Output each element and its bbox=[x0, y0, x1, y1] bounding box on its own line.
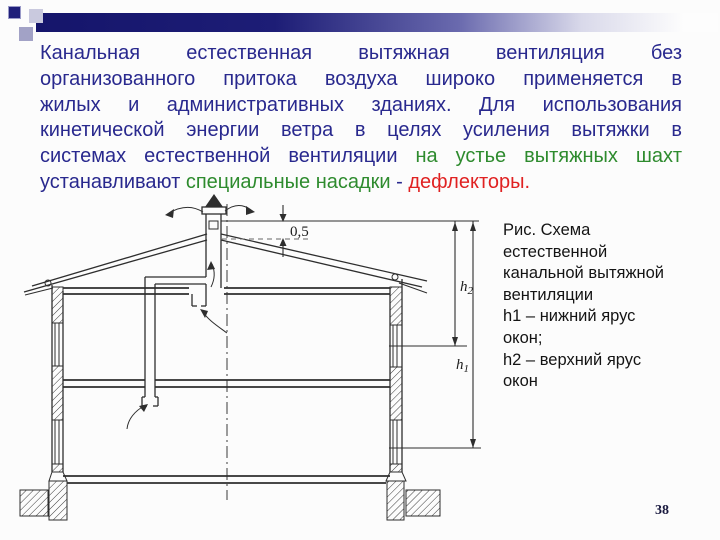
h1-label: h1 bbox=[456, 357, 469, 375]
lower-intake-arrow-icon bbox=[127, 406, 144, 429]
page-number: 38 bbox=[655, 503, 669, 519]
caption-line: окон bbox=[503, 371, 703, 393]
intro-paragraph: Канальная естественная вытяжная вентиляц… bbox=[40, 41, 682, 196]
caption-line: вентиляции bbox=[503, 285, 703, 307]
exhaust-up-arrow-icon bbox=[205, 194, 223, 207]
caption-line: канальной вытяжной bbox=[503, 263, 703, 285]
paragraph-line: устанавливают специальные насадки - дефл… bbox=[40, 170, 682, 196]
paragraph-line: системах естественной вентиляции на усть… bbox=[40, 144, 682, 170]
deflector-cap bbox=[202, 194, 226, 214]
offset-label: 0,5 bbox=[290, 224, 309, 240]
left-wall bbox=[49, 285, 67, 481]
caption-line: h1 – нижний ярус bbox=[503, 306, 703, 328]
caption-line: Рис. Схема bbox=[503, 220, 703, 242]
foundation bbox=[20, 476, 440, 520]
caption-line: окон; bbox=[503, 328, 703, 350]
decor-square-dark bbox=[8, 6, 21, 19]
decor-square-medium bbox=[19, 27, 33, 41]
dimension-offset-0-5: 0,5 bbox=[280, 205, 309, 257]
dimension-h1: h1 bbox=[389, 221, 481, 448]
paragraph-line: Канальная естественная вытяжная вентиляц… bbox=[40, 41, 682, 67]
caption-line: h2 – верхний ярус bbox=[503, 350, 703, 372]
wind-arrow-left-icon bbox=[169, 207, 203, 213]
paragraph-line: жилых и административных зданиях. Для ис… bbox=[40, 93, 682, 119]
upper-intake-arrow-icon bbox=[203, 312, 227, 333]
upper-exhaust-opening bbox=[192, 294, 206, 306]
paragraph-line: кинетической энергии ветра в целях усиле… bbox=[40, 118, 682, 144]
ground-hatch-left bbox=[20, 490, 48, 516]
caption-line: естественной bbox=[503, 242, 703, 264]
paragraph-line: организованного притока воздуха широко п… bbox=[40, 67, 682, 93]
title-bar-gradient bbox=[36, 13, 718, 32]
ground-hatch-right bbox=[406, 490, 440, 516]
h2-label: h2 bbox=[460, 279, 474, 297]
decor-square-light bbox=[29, 9, 43, 23]
roof bbox=[24, 234, 427, 295]
figure-caption: Рис. Схема естественной канальной вытяжн… bbox=[503, 220, 703, 393]
